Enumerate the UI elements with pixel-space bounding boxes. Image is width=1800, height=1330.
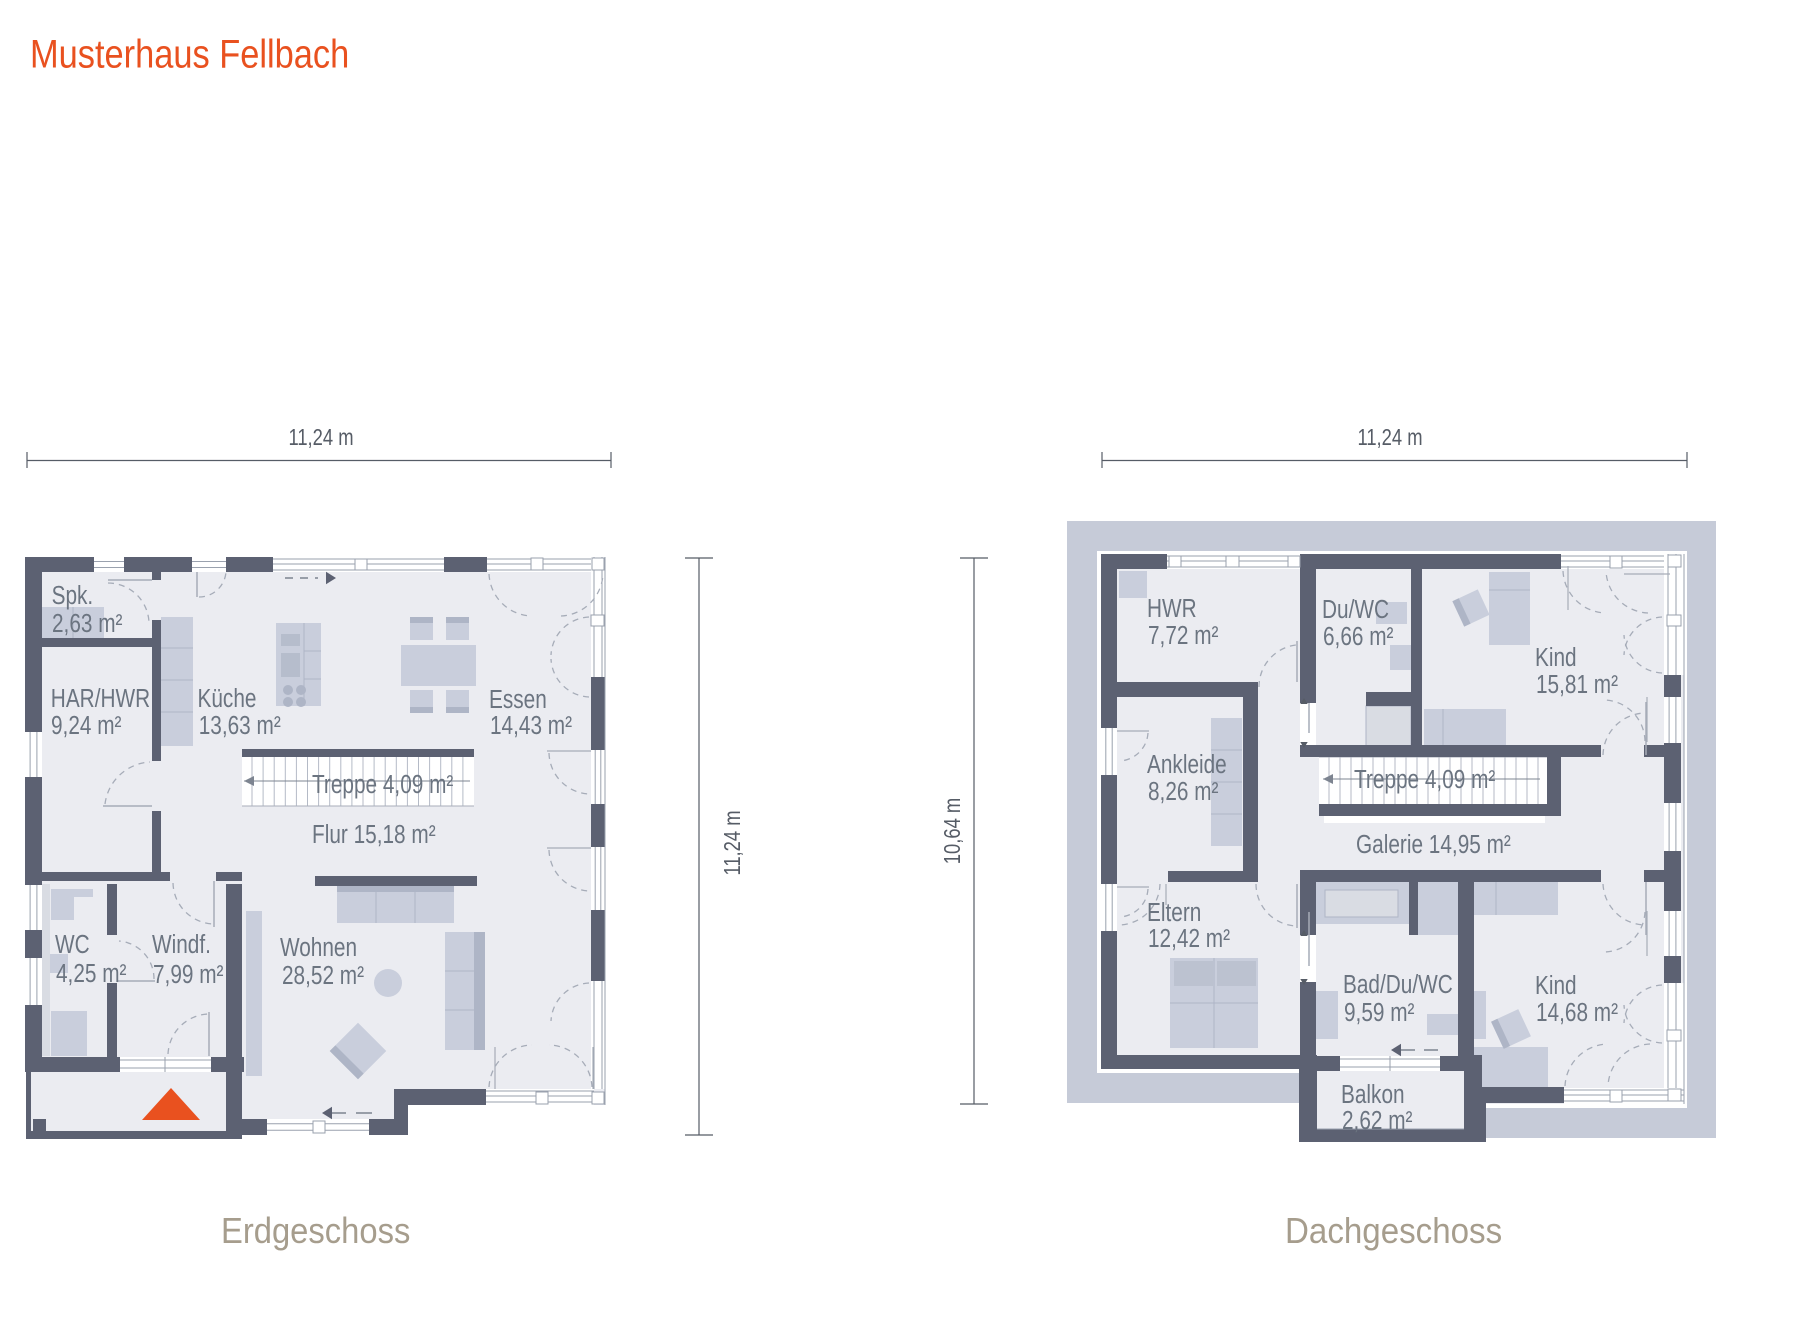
- svg-text:Ankleide: Ankleide: [1147, 750, 1227, 779]
- svg-text:Erdgeschoss: Erdgeschoss: [221, 1212, 410, 1252]
- svg-text:WC: WC: [55, 930, 90, 959]
- svg-text:11,24 m: 11,24 m: [288, 425, 353, 450]
- svg-text:14,43 m²: 14,43 m²: [490, 711, 572, 740]
- svg-text:8,26 m²: 8,26 m²: [1148, 777, 1219, 806]
- svg-text:Treppe 4,09 m²: Treppe 4,09 m²: [312, 770, 453, 799]
- svg-text:Windf.: Windf.: [152, 930, 211, 959]
- svg-text:14,68 m²: 14,68 m²: [1536, 998, 1618, 1027]
- svg-text:Balkon: Balkon: [1341, 1080, 1405, 1109]
- svg-text:Treppe 4,09 m²: Treppe 4,09 m²: [1354, 765, 1495, 794]
- svg-text:Essen: Essen: [489, 685, 547, 714]
- svg-text:Bad/Du/WC: Bad/Du/WC: [1343, 970, 1453, 999]
- svg-text:Dachgeschoss: Dachgeschoss: [1285, 1212, 1502, 1252]
- svg-text:12,42 m²: 12,42 m²: [1148, 924, 1230, 953]
- svg-text:7,72 m²: 7,72 m²: [1148, 621, 1219, 650]
- svg-text:2,62 m²: 2,62 m²: [1342, 1106, 1413, 1135]
- svg-text:6,66 m²: 6,66 m²: [1323, 622, 1394, 651]
- svg-text:15,81 m²: 15,81 m²: [1536, 670, 1618, 699]
- svg-text:Küche: Küche: [198, 684, 257, 713]
- svg-text:Kind: Kind: [1535, 643, 1577, 672]
- svg-text:Eltern: Eltern: [1147, 898, 1201, 927]
- svg-text:Galerie 14,95 m²: Galerie 14,95 m²: [1356, 830, 1511, 859]
- svg-text:HAR/HWR: HAR/HWR: [51, 684, 150, 713]
- svg-text:10,64 m: 10,64 m: [940, 798, 965, 864]
- svg-text:7,99 m²: 7,99 m²: [153, 960, 224, 989]
- svg-text:HWR: HWR: [1147, 594, 1197, 623]
- svg-text:28,52 m²: 28,52 m²: [282, 961, 364, 990]
- svg-text:Du/WC: Du/WC: [1322, 595, 1389, 624]
- svg-text:Kind: Kind: [1535, 971, 1577, 1000]
- svg-text:2,63 m²: 2,63 m²: [52, 609, 123, 638]
- svg-text:4,25 m²: 4,25 m²: [56, 959, 127, 988]
- svg-text:11,24 m: 11,24 m: [720, 810, 745, 875]
- svg-text:9,59 m²: 9,59 m²: [1344, 998, 1415, 1027]
- svg-text:11,24 m: 11,24 m: [1357, 425, 1422, 450]
- svg-text:Wohnen: Wohnen: [280, 933, 357, 962]
- svg-text:13,63 m²: 13,63 m²: [199, 711, 281, 740]
- svg-text:Musterhaus Fellbach: Musterhaus Fellbach: [30, 31, 349, 76]
- svg-text:Spk.: Spk.: [52, 581, 94, 610]
- svg-text:Flur 15,18 m²: Flur 15,18 m²: [312, 820, 436, 849]
- svg-text:9,24 m²: 9,24 m²: [51, 711, 122, 740]
